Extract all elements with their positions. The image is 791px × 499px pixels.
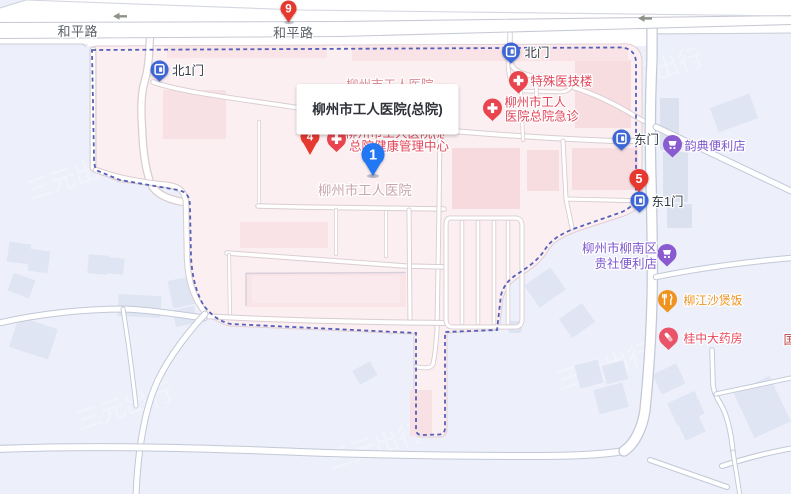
svg-text:柳州市工人医院(总院): 柳州市工人医院(总院) (312, 101, 443, 117)
svg-text:柳州市工人医院: 柳州市工人医院 (318, 182, 412, 198)
svg-text:韵典便利店: 韵典便利店 (685, 138, 746, 153)
svg-text:贵社便利店: 贵社便利店 (595, 256, 658, 271)
svg-text:特殊医技楼: 特殊医技楼 (531, 74, 593, 89)
svg-text:5: 5 (636, 172, 643, 186)
svg-text:东门: 东门 (634, 132, 659, 147)
svg-text:医院总院急诊: 医院总院急诊 (505, 109, 579, 124)
svg-text:桂中大药房: 桂中大药房 (684, 332, 743, 346)
svg-text:北1门: 北1门 (172, 63, 204, 78)
svg-text:北门: 北门 (525, 45, 550, 60)
svg-text:国: 国 (784, 333, 791, 347)
svg-text:和平路: 和平路 (273, 26, 314, 41)
svg-text:东1门: 东1门 (652, 194, 684, 209)
svg-text:柳州市工人: 柳州市工人 (505, 95, 567, 110)
svg-text:和平路: 和平路 (58, 24, 99, 39)
svg-text:1: 1 (369, 148, 377, 164)
svg-text:柳州市柳南区: 柳州市柳南区 (582, 241, 657, 256)
svg-text:柳江沙煲饭: 柳江沙煲饭 (684, 294, 743, 308)
svg-text:9: 9 (285, 4, 291, 16)
